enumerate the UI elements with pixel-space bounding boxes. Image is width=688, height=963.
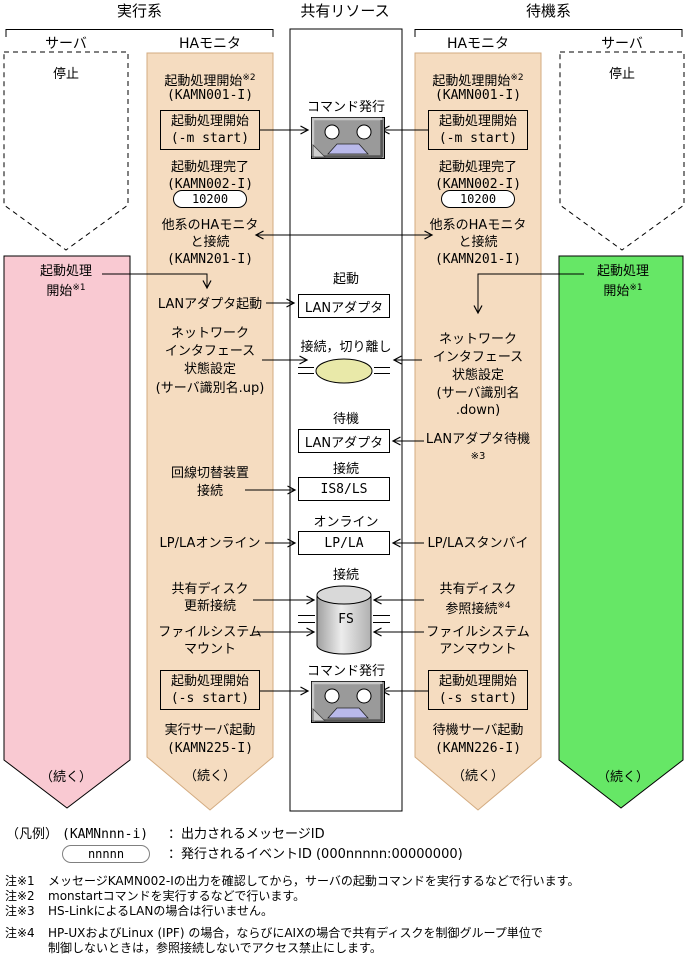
left-server-stop-label: 停止 [0,66,132,83]
left-ha-connect-other-line1: 他系のHAモニタ [135,217,285,234]
left-ha-mstart-line1: 起動処理開始 [161,113,259,130]
left-ha-fs-line2: マウント [135,641,285,658]
right-ha-fs-line1: ファイルシステム [403,624,553,641]
shared-lpla-box: LP/LA [298,531,390,555]
header-standby-system: 待機系 [415,3,682,20]
right-ha-server-start-id: (KAMN226-I) [403,740,553,757]
left-server-arrow-shape [4,256,130,808]
left-ha-net-line4: (サーバ識別名.up) [135,380,285,397]
right-ha-server-start-msg: 待機サーバ起動 [403,722,553,739]
right-server-start-line1: 起動処理 [548,263,688,280]
right-server-arrow-shape [559,256,683,808]
right-ha-sstart-line1: 起動処理開始 [429,673,527,690]
legend-message-desc: ：出力されるメッセージID [168,827,325,842]
right-ha-disk-line1: 共有ディスク [403,581,553,598]
note2-text: monstartコマンドを実行するなどで行います。 [48,889,305,904]
left-ha-disk-line2: 更新接続 [135,598,285,615]
right-ha-fs-line2: アンマウント [403,641,553,658]
left-server-continue: （続く） [0,769,132,786]
legend-title: （凡例） [6,827,58,842]
right-ha-lan-standby-sup: ※3 [403,448,553,465]
note1-text: メッセージKAMN002-Iの出力を確認してから，サーバの起動コマンドを実行する… [48,874,579,889]
ha-monitor-startup-diagram: 実行系 共有リソース 待機系 サーバ HAモニタ HAモニタ サーバ 停止 起動… [0,0,688,963]
right-ha-mstart-line1: 起動処理開始 [429,113,527,130]
right-ha-net-line5: .down) [403,402,553,419]
left-ha-event-id-oval: 10200 [173,190,247,208]
shared-fs-label: FS [290,611,402,628]
right-ha-connect-other-id: (KAMN201-I) [403,251,553,268]
note1-label: 注※1 [5,874,35,889]
right-ha-net-line3: 状態設定 [403,367,553,384]
note3-text: HS-LinkによるLANの場合は行いません。 [48,904,273,919]
right-ha-connect-other-line2: と接続 [403,234,553,251]
right-server-start-text: 開始 [603,284,629,299]
right-ha-complete-msg: 起動処理完了 [403,159,553,176]
left-server-start-line2: 開始※1 [0,280,132,300]
right-ha-disk-line2-text: 参照接続 [445,602,497,617]
right-ha-mstart-box: 起動処理開始 (-m start) [428,110,528,150]
right-ha-event-id-oval: 10200 [441,190,515,208]
command-cassette-icon-top [312,118,385,159]
right-ha-start-msg-sup: ※2 [510,73,523,83]
left-ha-sstart-line1: 起動処理開始 [161,673,259,690]
left-ha-fs-line1: ファイルシステム [135,624,285,641]
legend-event-oval: nnnnn [62,845,150,863]
header-ha-monitor-right: HAモニタ [403,36,553,53]
left-ha-continue: （続く） [135,768,285,785]
left-ha-start-msg-id: (KAMN001-I) [135,87,285,104]
right-server-start-sup: ※1 [629,283,642,293]
left-ha-sstart-box: 起動処理開始 (-s start) [160,670,260,710]
left-ha-mstart-line2: (-m start) [161,130,259,147]
shared-standby-label: 待機 [290,411,402,428]
legend-message-key: (KAMNnnn-i) [62,827,148,842]
left-ha-line-switch-line1: 回線切替装置 [135,465,285,482]
left-ha-connect-other-id: (KAMN201-I) [135,251,285,268]
left-ha-complete-msg: 起動処理完了 [135,159,285,176]
right-ha-lpla-standby: LP/LAスタンバイ [403,535,553,552]
right-ha-sstart-box: 起動処理開始 (-s start) [428,670,528,710]
left-ha-server-start-id: (KAMN225-I) [135,740,285,757]
header-exec-system: 実行系 [6,3,273,20]
shared-connect-label2: 接続 [290,567,402,584]
note4-text-line1: HP-UXおよびLinux (IPF) の場合，ならびにAIXの場合で共有ディス… [48,926,543,941]
left-ha-lan-start: LANアダプタ起動 [135,296,285,313]
note4-label: 注※4 [5,926,35,941]
left-ha-start-msg-sup: ※2 [242,73,255,83]
left-server-start-sup: ※1 [72,283,85,293]
right-server-stop-label: 停止 [547,66,688,83]
right-ha-sstart-line2: (-s start) [429,690,527,707]
right-ha-net-line4: (サーバ識別名 [403,385,553,402]
left-server-start-text: 開始 [46,284,72,299]
legend-event-desc: ：発行されるイベントID (000nnnnn:00000000) [168,847,463,862]
shared-cmd-issue-bottom: コマンド発行 [290,663,402,680]
note3-label: 注※3 [5,904,35,919]
header-shared-resource: 共有リソース [270,3,420,20]
header-ha-monitor-left: HAモニタ [135,36,285,53]
right-server-start-line2: 開始※1 [548,280,688,300]
right-ha-disk-line2-sup: ※4 [497,601,510,611]
header-server-right: サーバ [547,36,688,53]
left-ha-line-switch-line2: 接続 [135,483,285,500]
shared-attach-detach-label: 接続，切り離し [290,339,402,356]
left-ha-mstart-box: 起動処理開始 (-m start) [160,110,260,150]
lan-segment-ellipse-icon [316,359,372,383]
right-server-continue: （続く） [548,769,688,786]
command-cassette-icon-bottom [312,682,385,723]
note2-label: 注※2 [5,889,35,904]
shared-lan-adapter-box1: LANアダプタ [298,294,390,318]
left-ha-lpla-online: LP/LAオンライン [135,535,285,552]
shared-line-unit-box: IS8/LS [298,477,390,501]
left-ha-net-line2: インタフェース [135,343,285,360]
shared-connect-label1: 接続 [290,461,402,478]
left-ha-sstart-line2: (-s start) [161,690,259,707]
shared-cmd-issue-top: コマンド発行 [290,99,402,116]
header-server-left: サーバ [0,36,132,53]
right-ha-continue: （続く） [403,768,553,785]
right-ha-disk-line2: 参照接続※4 [403,598,553,618]
shared-boot-label: 起動 [290,271,402,288]
right-ha-connect-other-line1: 他系のHAモニタ [403,217,553,234]
left-ha-net-line3: 状態設定 [135,361,285,378]
right-ha-net-line1: ネットワーク [403,331,553,348]
shared-online-label: オンライン [290,514,402,531]
left-server-start-line1: 起動処理 [0,263,132,280]
left-ha-disk-line1: 共有ディスク [135,581,285,598]
left-ha-net-line1: ネットワーク [135,325,285,342]
shared-lan-adapter-box2: LANアダプタ [298,429,390,453]
right-ha-start-msg-id: (KAMN001-I) [403,87,553,104]
right-ha-net-line2: インタフェース [403,349,553,366]
note4-text-line2: 制御しないときは，参照接続しないでアクセス禁止にします。 [48,941,382,956]
right-ha-lan-standby: LANアダプタ待機 [403,431,553,448]
left-ha-connect-other-line2: と接続 [135,234,285,251]
left-ha-server-start-msg: 実行サーバ起動 [135,722,285,739]
right-ha-mstart-line2: (-m start) [429,130,527,147]
